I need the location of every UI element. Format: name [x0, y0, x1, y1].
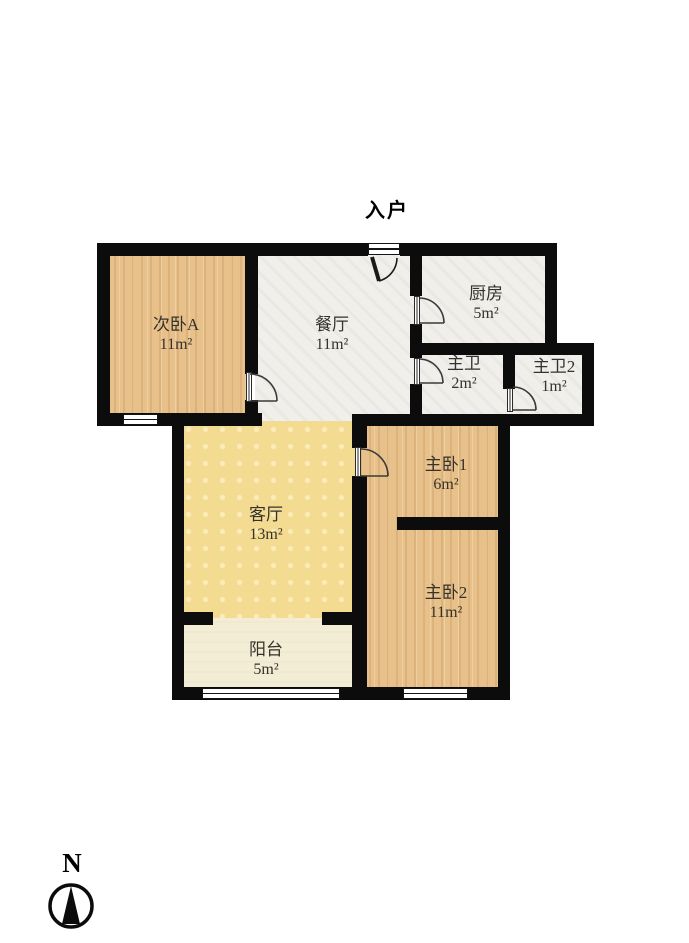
bedroom-a-door-icon: [250, 374, 277, 401]
kitchen-door-icon: [420, 298, 444, 323]
master-bath-door-icon: [420, 359, 443, 383]
north-indicator-label: N: [42, 848, 102, 879]
plan-linework: [0, 0, 689, 943]
master-bath-2-door-icon: [513, 387, 536, 410]
floor-plan: 入户: [0, 0, 689, 943]
compass-icon: [50, 885, 92, 927]
master-bedroom-1-door-icon: [361, 449, 388, 476]
entrance-door-icon: [372, 257, 397, 281]
